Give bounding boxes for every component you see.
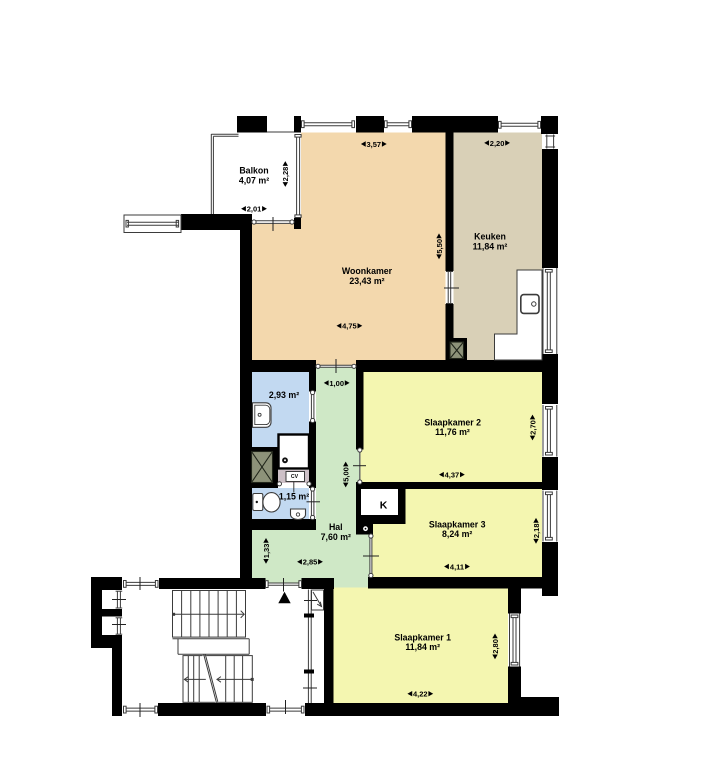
svg-text:11,84 m²: 11,84 m² <box>405 642 440 652</box>
svg-text:4,22: 4,22 <box>413 690 428 699</box>
svg-text:Keuken: Keuken <box>474 232 506 242</box>
svg-text:Slaapkamer 1: Slaapkamer 1 <box>394 632 451 642</box>
svg-text:Slaapkamer 2: Slaapkamer 2 <box>424 417 481 427</box>
svg-text:2,28: 2,28 <box>281 167 290 182</box>
svg-text:5,00: 5,00 <box>342 467 351 482</box>
svg-text:4,11: 4,11 <box>450 562 464 571</box>
svg-text:2,93 m²: 2,93 m² <box>269 390 299 400</box>
svg-text:1,33: 1,33 <box>262 544 271 559</box>
svg-text:2,85: 2,85 <box>303 558 318 567</box>
svg-text:2,70: 2,70 <box>528 420 537 435</box>
svg-text:2,20: 2,20 <box>490 139 505 148</box>
svg-text:5,50: 5,50 <box>435 239 444 254</box>
svg-text:4,75: 4,75 <box>342 322 357 331</box>
svg-text:K: K <box>380 499 388 511</box>
svg-text:2,01: 2,01 <box>247 205 262 214</box>
svg-text:3,57: 3,57 <box>366 140 381 149</box>
svg-text:Woonkamer: Woonkamer <box>342 266 393 276</box>
svg-text:2,80: 2,80 <box>491 639 500 654</box>
svg-text:2,18: 2,18 <box>532 523 541 538</box>
svg-text:4,37: 4,37 <box>445 470 460 479</box>
svg-text:CV: CV <box>291 474 299 480</box>
svg-text:23,43 m²: 23,43 m² <box>349 276 384 286</box>
svg-text:Hal: Hal <box>329 522 343 532</box>
svg-text:11,76 m²: 11,76 m² <box>435 427 470 437</box>
svg-text:Balkon: Balkon <box>239 166 268 176</box>
svg-text:1,00: 1,00 <box>329 379 344 388</box>
svg-text:1,15 m²: 1,15 m² <box>279 491 309 501</box>
svg-text:7,60 m²: 7,60 m² <box>321 532 351 542</box>
svg-text:8,24 m²: 8,24 m² <box>442 529 472 539</box>
svg-text:11,84 m²: 11,84 m² <box>473 241 508 251</box>
svg-text:Slaapkamer 3: Slaapkamer 3 <box>429 520 486 530</box>
svg-text:4,07 m²: 4,07 m² <box>239 175 269 185</box>
